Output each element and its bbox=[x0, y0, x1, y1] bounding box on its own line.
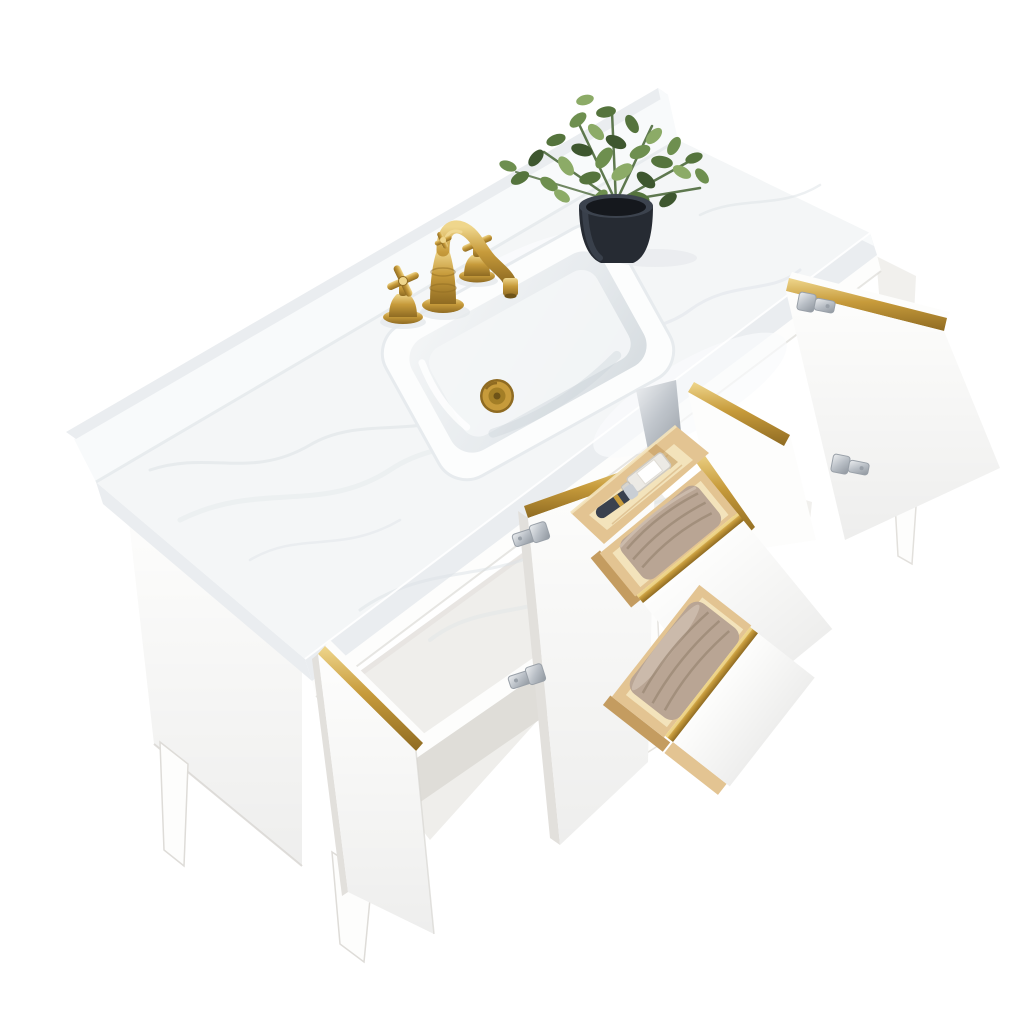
plant-pot bbox=[579, 194, 653, 263]
product-photo: Top-down angled studio photo of a white … bbox=[0, 0, 1024, 1024]
handle-left-knob bbox=[399, 277, 408, 286]
pot-soil bbox=[586, 198, 646, 216]
spout-aerator bbox=[505, 294, 517, 299]
drain-center bbox=[494, 393, 501, 400]
spout-tip bbox=[503, 278, 518, 296]
leg-back-left bbox=[160, 742, 188, 866]
sink-drain bbox=[480, 379, 514, 413]
spout-finial-knob bbox=[440, 237, 446, 243]
vanity-photo-canvas: Top-down angled studio photo of a white … bbox=[0, 0, 1024, 1024]
